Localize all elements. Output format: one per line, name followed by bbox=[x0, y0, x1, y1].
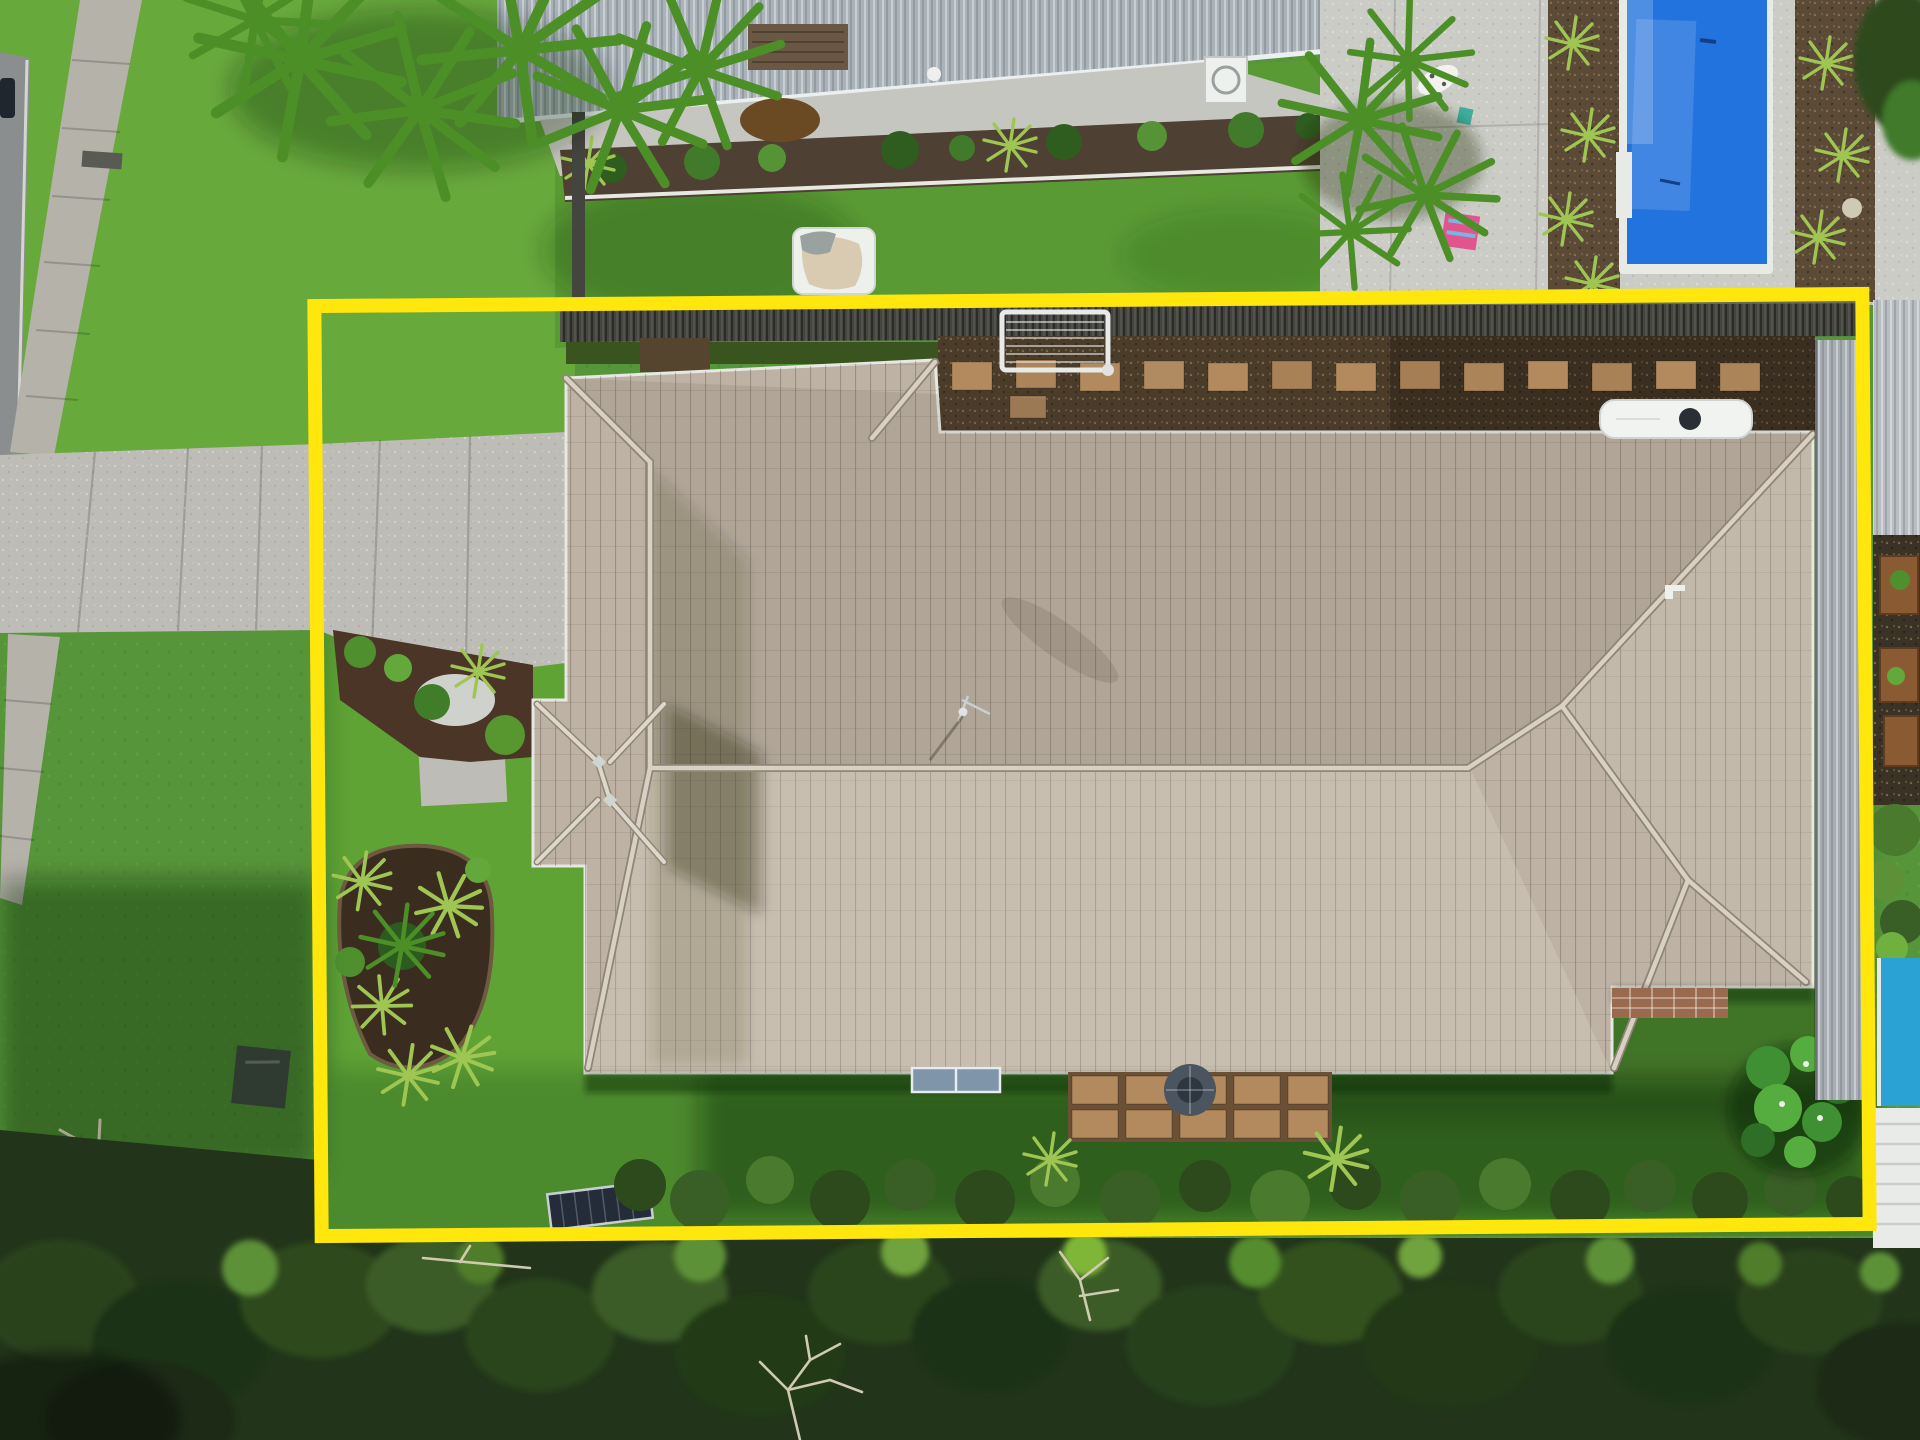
shrub bbox=[344, 636, 376, 668]
tactile-paver bbox=[81, 151, 122, 170]
aerial-photo: Aerial drone photograph of a single-stor… bbox=[0, 0, 1920, 1440]
shrub bbox=[384, 654, 412, 682]
main-house bbox=[533, 360, 1813, 1093]
paver-patio bbox=[1068, 1064, 1332, 1142]
shrub bbox=[485, 715, 525, 755]
ac-unit bbox=[1205, 57, 1247, 103]
aerial-photo-canvas: Aerial drone photograph of a single-stor… bbox=[0, 0, 1920, 1440]
palm-trunk-crown bbox=[740, 98, 820, 142]
shrub bbox=[335, 947, 365, 977]
fence-shadow-strip bbox=[566, 342, 938, 364]
caravan-hatch bbox=[1679, 408, 1701, 430]
sandpit bbox=[793, 228, 875, 294]
pergola-white bbox=[1873, 1108, 1920, 1248]
shrub bbox=[414, 684, 450, 720]
white-post bbox=[927, 67, 941, 81]
shrub bbox=[465, 857, 491, 883]
caravan bbox=[1600, 400, 1752, 438]
neighbor-pool-right bbox=[1878, 958, 1920, 1106]
brick-strip bbox=[1612, 988, 1728, 1018]
gravel-pocket bbox=[640, 338, 710, 372]
pool-step-ledge bbox=[1627, 0, 1653, 144]
pool-debris bbox=[1700, 40, 1716, 42]
pool-step-notch bbox=[1616, 152, 1632, 218]
utility-box bbox=[231, 1045, 291, 1108]
pale-stone bbox=[1842, 198, 1862, 218]
parked-car-fragment bbox=[0, 78, 15, 118]
shadow-grass bbox=[0, 880, 318, 1170]
neighbor-pool bbox=[1616, 0, 1773, 274]
clothesline-knob bbox=[1102, 364, 1114, 376]
